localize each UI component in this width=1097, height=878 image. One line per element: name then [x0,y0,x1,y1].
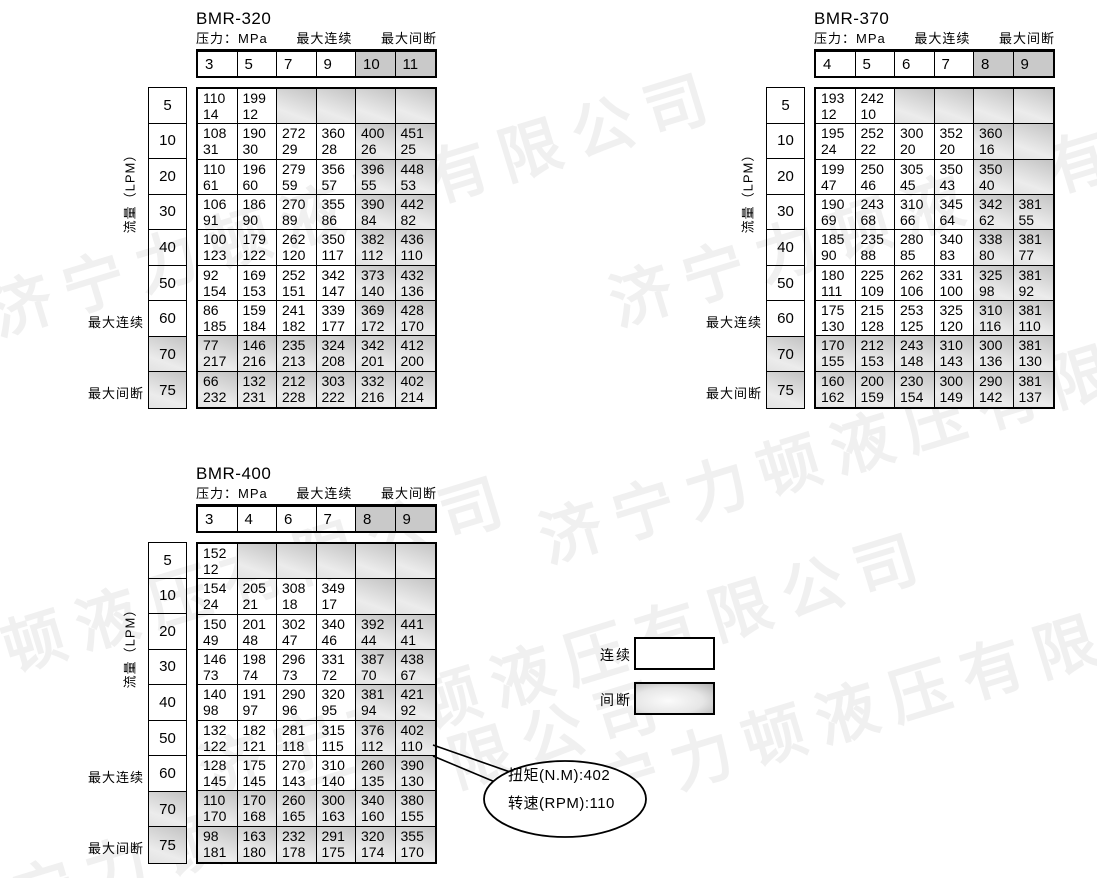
data-cell: 291175 [317,827,357,862]
flow-header-cell: 60 [149,756,186,792]
torque-value: 381 [1019,302,1054,318]
torque-value: 77 [203,337,237,353]
speed-value: 112 [361,738,395,754]
torque-value: 340 [322,616,356,632]
speed-value: 181 [203,844,237,860]
data-cell [396,579,436,614]
flow-header-cell: 5 [149,88,186,124]
speed-value: 109 [861,283,895,299]
data-cell: 18690 [238,195,278,230]
data-cell: 232178 [277,827,317,862]
speed-value: 91 [203,212,237,228]
speed-value: 74 [243,667,277,683]
flow-header-column: 51020304050607075 [148,87,187,409]
speed-value: 12 [203,561,237,577]
speed-value: 40 [979,177,1013,193]
torque-value: 132 [243,373,277,389]
speed-value: 110 [401,247,436,263]
speed-value: 20 [900,141,934,157]
data-cell: 45125 [396,124,436,159]
max-intermittent-header: 最大间断 [999,28,1055,47]
data-cell: 33880 [974,230,1014,265]
torque-value: 300 [979,337,1013,353]
torque-value: 436 [401,231,436,247]
torque-value: 108 [203,125,237,141]
max-continuous-header: 最大连续 [914,28,970,47]
speed-value: 208 [322,353,356,369]
torque-value: 252 [861,125,895,141]
flow-header-cell: 60 [149,301,186,337]
data-cell: 38770 [356,650,396,685]
flow-header-cell: 10 [767,124,804,160]
data-cell: 34917 [317,579,357,614]
flow-header-cell: 30 [149,650,186,686]
speed-value: 22 [861,141,895,157]
speed-value: 170 [203,808,237,824]
torque-value: 381 [1019,337,1054,353]
data-cell: 43867 [396,650,436,685]
speed-value: 231 [243,389,277,405]
flow-header-cell: 40 [767,230,804,266]
speed-value: 97 [243,702,277,718]
torque-value: 442 [401,196,436,212]
data-cell: 200159 [856,372,896,407]
speed-value: 130 [1019,353,1054,369]
max-intermittent-row-label: 最大间断 [704,383,762,402]
data-cell: 320174 [356,827,396,862]
pressure-header-cell: 6 [895,52,935,76]
speed-value: 12 [821,106,855,122]
pressure-header-cell: 3 [198,507,238,531]
flow-header-cell: 30 [149,195,186,231]
data-cell: 34564 [935,195,975,230]
torque-value: 303 [322,373,356,389]
torque-value: 243 [861,196,895,212]
data-cell: 19197 [238,685,278,720]
torque-value: 252 [282,267,316,283]
speed-value: 140 [361,283,395,299]
data-cell: 260135 [356,756,396,791]
data-cell: 44853 [396,160,436,195]
torque-value: 191 [243,686,277,702]
data-cell: 15212 [198,544,238,579]
speed-value: 73 [282,667,316,683]
torque-value: 332 [361,373,395,389]
data-cell: 180111 [816,266,856,301]
speed-value: 174 [361,844,395,860]
torque-value: 428 [401,302,436,318]
data-cell: 19069 [816,195,856,230]
speed-value: 162 [821,389,855,405]
flow-header-cell: 5 [767,88,804,124]
data-cell: 412200 [396,336,436,371]
speed-value: 143 [940,353,974,369]
data-cell: 428170 [396,301,436,336]
speed-value: 57 [322,177,356,193]
pressure-header-cell: 8 [356,507,396,531]
torque-value: 302 [282,616,316,632]
pressure-header-cell: 9 [396,507,436,531]
max-continuous-row-label: 最大连续 [704,312,762,331]
torque-value: 92 [203,267,237,283]
data-cell: 402214 [396,372,436,407]
data-cell: 310143 [935,336,975,371]
speed-value: 83 [940,247,974,263]
torque-value: 260 [282,792,316,808]
data-cell: 28085 [895,230,935,265]
torque-value: 381 [361,686,395,702]
speed-value: 49 [203,632,237,648]
torque-value: 421 [401,686,436,702]
data-cell: 44282 [396,195,436,230]
torque-value: 373 [361,267,395,283]
torque-value: 300 [940,373,974,389]
torque-value: 352 [940,125,974,141]
data-cell: 77217 [198,336,238,371]
data-cell: 325120 [935,301,975,336]
data-cell: 331100 [935,266,975,301]
torque-value: 170 [821,337,855,353]
torque-value: 241 [282,302,316,318]
data-cell: 300163 [317,791,357,826]
data-cell: 212153 [856,336,896,371]
data-cell: 38155 [1014,195,1054,230]
table-title: BMR-400 [196,464,271,484]
speed-value: 228 [282,389,316,405]
speed-value: 44 [361,632,395,648]
speed-value: 69 [821,212,855,228]
data-cell: 169153 [238,266,278,301]
torque-value: 175 [821,302,855,318]
torque-value: 262 [900,267,934,283]
data-cell: 182121 [238,721,278,756]
data-cell: 262106 [895,266,935,301]
speed-value: 94 [361,702,395,718]
data-cell: 230154 [895,372,935,407]
data-cell [895,89,935,124]
torque-value: 212 [282,373,316,389]
data-cell: 252151 [277,266,317,301]
torque-value: 250 [861,161,895,177]
torque-value: 360 [322,125,356,141]
data-cell: 35043 [935,160,975,195]
speed-value: 45 [900,177,934,193]
data-cell: 23588 [856,230,896,265]
speed-value: 106 [900,283,934,299]
speed-value: 98 [203,702,237,718]
data-cell: 36016 [974,124,1014,159]
pressure-unit-label: 压力：MPa [196,28,268,47]
callout-shape [425,725,665,855]
speed-value: 112 [361,247,395,263]
torque-value: 152 [203,545,237,561]
speed-value: 96 [282,702,316,718]
data-cell: 30818 [277,579,317,614]
speed-value: 153 [243,283,277,299]
data-cell: 369172 [356,301,396,336]
data-cell [396,89,436,124]
torque-value: 146 [243,337,277,353]
torque-value: 338 [979,231,1013,247]
flow-header-column: 51020304050607075 [148,542,187,864]
data-cell: 86185 [198,301,238,336]
pressure-header-cell: 7 [935,52,975,76]
torque-value: 100 [203,231,237,247]
torque-value: 290 [282,686,316,702]
torque-value: 392 [361,616,395,632]
torque-value: 390 [361,196,395,212]
data-cell: 432136 [396,266,436,301]
data-cell: 170168 [238,791,278,826]
data-cell [1014,124,1054,159]
max-continuous-row-label: 最大连续 [86,312,144,331]
data-cell: 11014 [198,89,238,124]
speed-value: 18 [282,596,316,612]
torque-value: 331 [940,267,974,283]
data-cell [935,89,975,124]
speed-value: 72 [322,667,356,683]
torque-value: 325 [940,302,974,318]
data-cell: 350117 [317,230,357,265]
torque-value: 438 [401,651,436,667]
torque-value: 190 [821,196,855,212]
speed-value: 125 [900,318,934,334]
table-title: BMR-320 [196,9,271,29]
torque-value: 340 [940,231,974,247]
speed-value: 73 [203,667,237,683]
torque-value: 270 [282,757,316,773]
speed-value: 64 [940,212,974,228]
torque-value: 140 [203,686,237,702]
pressure-header-cell: 6 [277,507,317,531]
speed-value: 155 [821,353,855,369]
flow-header-cell: 70 [149,792,186,828]
max-continuous-header: 最大连续 [296,28,352,47]
speed-value: 159 [861,389,895,405]
torque-value: 345 [940,196,974,212]
flow-header-cell: 75 [149,372,186,408]
flow-axis-label: 流量（LPM） [120,136,139,246]
data-cell: 19660 [238,160,278,195]
data-cell: 30020 [895,124,935,159]
data-cell: 146216 [238,336,278,371]
data-cell: 32095 [317,685,357,720]
data-cell: 342201 [356,336,396,371]
data-cell [277,89,317,124]
torque-value: 310 [900,196,934,212]
data-cell: 303222 [317,372,357,407]
data-cell: 159184 [238,301,278,336]
torque-value: 146 [203,651,237,667]
torque-value: 232 [282,828,316,844]
data-cell [356,579,396,614]
torque-value: 387 [361,651,395,667]
data-cell [317,89,357,124]
torque-value: 342 [979,196,1013,212]
speed-value: 177 [322,318,356,334]
speed-value: 123 [203,247,237,263]
torque-value: 340 [361,792,395,808]
data-cell: 35657 [317,160,357,195]
speed-value: 85 [900,247,934,263]
table-title: BMR-370 [814,9,889,29]
torque-value: 376 [361,722,395,738]
data-cell: 175130 [816,301,856,336]
torque-value: 382 [361,231,395,247]
speed-value: 136 [401,283,436,299]
speed-value: 120 [282,247,316,263]
speed-value: 100 [940,283,974,299]
flow-header-cell: 50 [767,266,804,302]
data-cell [1014,89,1054,124]
flow-header-column: 51020304050607075 [766,87,805,409]
data-cell: 14673 [198,650,238,685]
data-cell: 290142 [974,372,1014,407]
torque-value: 381 [1019,373,1054,389]
torque-value: 110 [203,792,237,808]
data-cell: 132122 [198,721,238,756]
data-cell: 170155 [816,336,856,371]
data-cell: 34046 [317,615,357,650]
speed-value: 201 [361,353,395,369]
data-cell: 300136 [974,336,1014,371]
speed-value: 122 [243,247,277,263]
flow-header-cell: 70 [767,337,804,373]
max-intermittent-row-label: 最大间断 [86,383,144,402]
speed-value: 143 [282,773,316,789]
speed-value: 20 [940,141,974,157]
data-cell: 42192 [396,685,436,720]
pressure-unit-label: 压力：MPa [814,28,886,47]
torque-value: 356 [322,161,356,177]
data-cell: 39655 [356,160,396,195]
data-cell [1014,160,1054,195]
torque-value: 402 [401,373,436,389]
speed-value: 137 [1019,389,1054,405]
speed-value: 180 [243,844,277,860]
data-cell [356,544,396,579]
speed-value: 31 [203,141,237,157]
pressure-header-cell: 4 [816,52,856,76]
torque-value: 280 [900,231,934,247]
torque-value: 350 [940,161,974,177]
data-cell: 20521 [238,579,278,614]
torque-value: 253 [900,302,934,318]
speed-value: 172 [361,318,395,334]
data-cell: 11061 [198,160,238,195]
data-cell: 36028 [317,124,357,159]
data-cell: 215128 [856,301,896,336]
flow-header-cell: 50 [149,266,186,302]
data-cell: 310116 [974,301,1014,336]
speed-value: 178 [282,844,316,860]
speed-value: 88 [861,247,895,263]
torque-value: 350 [979,161,1013,177]
flow-header-cell: 50 [149,721,186,757]
speed-value: 55 [1019,212,1054,228]
data-cell: 39084 [356,195,396,230]
torque-value: 315 [322,722,356,738]
data-cell: 35220 [935,124,975,159]
speed-value: 153 [861,353,895,369]
speed-value: 175 [322,844,356,860]
flow-header-cell: 5 [149,543,186,579]
torque-value: 325 [979,267,1013,283]
pressure-header-cell: 7 [317,507,357,531]
torque-value: 235 [282,337,316,353]
pressure-header-cell: 10 [356,52,396,76]
data-cell: 339177 [317,301,357,336]
speed-value: 149 [940,389,974,405]
data-cell: 19312 [816,89,856,124]
torque-value: 225 [861,267,895,283]
torque-value: 242 [861,90,895,106]
data-cell: 179122 [238,230,278,265]
speed-value: 110 [1019,318,1054,334]
flow-axis-label: 流量（LPM） [120,591,139,701]
data-cell: 381110 [1014,301,1054,336]
data-grid: 1521215424205213081834917150492014830247… [196,542,437,864]
data-grid: 1101419912108311903027229360284002645125… [196,87,437,409]
torque-value: 185 [821,231,855,247]
data-cell: 19030 [238,124,278,159]
speed-value: 84 [361,212,395,228]
data-cell: 163180 [238,827,278,862]
torque-value: 205 [243,580,277,596]
torque-value: 230 [900,373,934,389]
datasheet-page: 济宁力顿液压有限公司 济宁力顿液压有限公司 济宁力顿液压有限公司 济宁力顿液压有… [0,0,1097,878]
legend-intermittent-label: 间断 [600,690,632,710]
speed-value: 216 [243,353,277,369]
data-cell: 29673 [277,650,317,685]
speed-value: 168 [243,808,277,824]
torque-value: 243 [900,337,934,353]
speed-value: 165 [282,808,316,824]
data-cell: 10691 [198,195,238,230]
data-cell: 25222 [856,124,896,159]
pressure-header-cell: 4 [238,507,278,531]
data-cell: 300149 [935,372,975,407]
speed-value: 116 [979,318,1013,334]
speed-value: 163 [322,808,356,824]
pressure-header-cell: 3 [198,52,238,76]
data-cell: 44141 [396,615,436,650]
speed-value: 86 [322,212,356,228]
flow-header-cell: 20 [767,159,804,195]
flow-header-cell: 70 [149,337,186,373]
data-cell: 34083 [935,230,975,265]
pressure-header-cell: 8 [974,52,1014,76]
data-cell: 160162 [816,372,856,407]
table-bmr-400: BMR-400压力：MPa最大连续最大间断3467895102030405060… [86,461,448,878]
torque-value: 110 [203,161,237,177]
speed-value: 46 [322,632,356,648]
pressure-header-cell: 9 [1014,52,1054,76]
speed-value: 77 [1019,247,1054,263]
data-cell: 31066 [895,195,935,230]
torque-value: 324 [322,337,356,353]
speed-value: 142 [979,389,1013,405]
pressure-header-cell: 5 [856,52,896,76]
speed-value: 12 [243,106,277,122]
torque-value: 199 [243,90,277,106]
data-cell [238,544,278,579]
torque-value: 132 [203,722,237,738]
speed-value: 47 [821,177,855,193]
data-cell: 270143 [277,756,317,791]
data-cell: 260165 [277,791,317,826]
data-cell: 310140 [317,756,357,791]
